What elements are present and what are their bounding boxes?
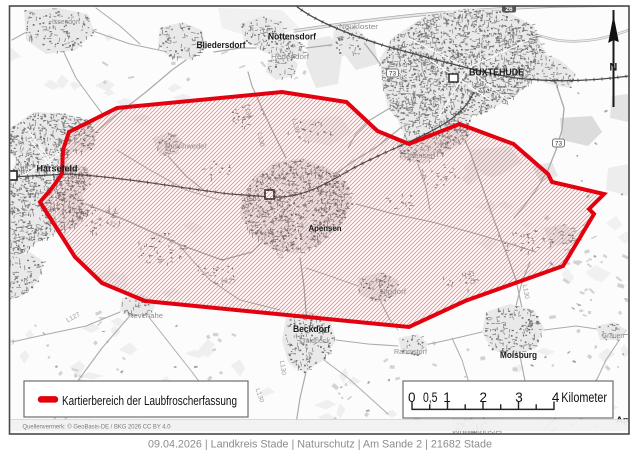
svg-text:Hedendorf: Hedendorf: [271, 52, 310, 61]
svg-text:Kartierbereich der Laubfrosche: Kartierbereich der Laubfroscherfassung: [62, 393, 237, 408]
svg-text:Neukloster: Neukloster: [339, 22, 379, 31]
svg-text:Rahmstorf: Rahmstorf: [394, 347, 428, 356]
svg-text:BUXTEHUDE: BUXTEHUDE: [469, 68, 524, 79]
svg-text:N: N: [609, 62, 617, 74]
svg-text:09.04.2026 | Landkreis Stade |: 09.04.2026 | Landkreis Stade | Naturschu…: [148, 439, 492, 451]
svg-text:Harsefeld: Harsefeld: [37, 164, 78, 174]
svg-text:Beckdorf: Beckdorf: [293, 324, 331, 334]
svg-text:Quellenvermerk: © GeoBasis-DE: Quellenvermerk: © GeoBasis-DE / BKG 2026…: [23, 423, 171, 431]
svg-text:Kilometer: Kilometer: [561, 390, 607, 405]
svg-text:Ruschwedel: Ruschwedel: [165, 142, 206, 151]
svg-text:Goldbeck: Goldbeck: [300, 336, 330, 345]
svg-text:Nottensdorf: Nottensdorf: [268, 32, 317, 42]
svg-text:Bliedersdorf: Bliedersdorf: [197, 40, 247, 50]
svg-text:Moisburg: Moisburg: [500, 350, 537, 360]
svg-text:Nindorf: Nindorf: [380, 287, 407, 296]
svg-text:Ottensen: Ottensen: [404, 151, 435, 160]
svg-text:73: 73: [555, 140, 563, 147]
svg-text:0,5: 0,5: [423, 390, 438, 405]
svg-text:26: 26: [505, 6, 513, 13]
svg-text:Revenahe: Revenahe: [128, 311, 163, 320]
svg-text:4: 4: [552, 390, 560, 405]
svg-text:Apensen: Apensen: [309, 223, 342, 233]
svg-text:Grauen: Grauen: [602, 331, 624, 340]
svg-text:Issendorf: Issendorf: [52, 17, 81, 26]
svg-text:73: 73: [389, 70, 397, 77]
